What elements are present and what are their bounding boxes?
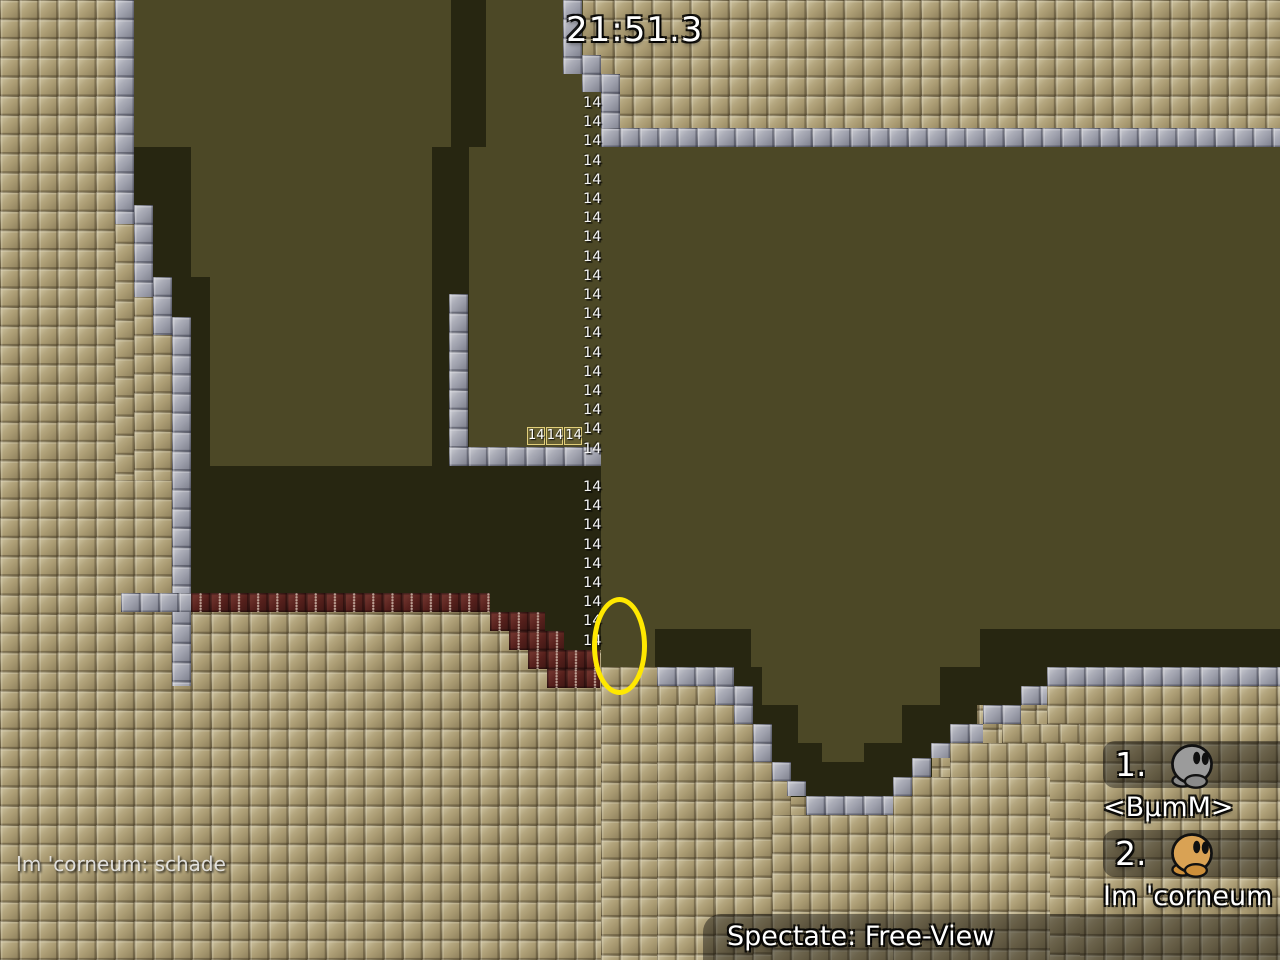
unhookable-tiles <box>121 593 191 612</box>
switch-tile-boxed: 14 <box>564 427 582 445</box>
chat-message: Im 'corneum: schade <box>16 852 226 876</box>
scoreboard-row-2: 2. <box>1103 830 1280 877</box>
dark-background <box>655 629 751 667</box>
switch-number-label: 14 <box>583 402 603 418</box>
air-background <box>751 629 980 667</box>
switch-number-label: 14 <box>583 364 603 380</box>
switch-number-label: 14 <box>583 306 603 322</box>
unhookable-tiles <box>772 762 791 781</box>
dark-background <box>191 466 601 593</box>
spectate-bar[interactable]: Spectate: Free-View <box>703 914 1280 960</box>
switch-number-label: 14 <box>583 268 603 284</box>
switch-number-label: 14 <box>583 249 603 265</box>
scoreboard-rank-1: 1. <box>1115 745 1167 784</box>
unhookable-tiles <box>950 724 983 743</box>
dark-background <box>980 629 1280 667</box>
switch-number-label: 14 <box>583 517 603 533</box>
switch-number-label: 14 <box>583 421 603 437</box>
unhookable-tiles <box>657 667 734 686</box>
switch-number-label: 14 <box>583 191 603 207</box>
switch-number-label: 14 <box>583 479 603 495</box>
unhookable-tiles <box>806 796 893 815</box>
switch-number-label: 14 <box>583 325 603 341</box>
unhookable-tiles <box>115 0 134 224</box>
switch-number-label: 14 <box>583 575 603 591</box>
switch-number-label: 14 <box>583 153 603 169</box>
unhookable-tiles <box>715 686 753 705</box>
unhookable-tiles <box>153 277 172 335</box>
switch-number-label: 14 <box>583 95 603 111</box>
unhookable-tiles <box>1047 667 1280 686</box>
scoreboard-name-1: <BμmM> <box>1103 792 1234 823</box>
scoreboard-name-2: Im 'corneum <box>1103 881 1272 912</box>
switch-number-label: 14 <box>583 594 603 610</box>
unhookable-tiles <box>1021 686 1047 705</box>
switch-tile-boxed: 14 <box>527 427 545 445</box>
switch-number-label: 14 <box>583 383 603 399</box>
scoreboard-rank-2: 2. <box>1115 834 1167 873</box>
switch-number-label: 14 <box>583 287 603 303</box>
air-background <box>762 667 940 705</box>
freeze-tiles <box>547 669 600 688</box>
switch-number-label: 14 <box>583 172 603 188</box>
air-background <box>601 147 1280 629</box>
unhookable-tiles <box>893 777 912 796</box>
tee-avatar-2 <box>1167 829 1217 879</box>
switch-number-label: 14 <box>583 441 603 457</box>
air-background <box>822 743 864 762</box>
game-viewport: 1414141414141414141414141414141414141414… <box>0 0 1280 960</box>
ground-tiles <box>115 224 134 480</box>
switch-number-label: 14 <box>583 537 603 553</box>
freeze-tiles <box>191 593 490 612</box>
switch-number-label: 14 <box>583 133 603 149</box>
tee-avatar-1 <box>1167 740 1217 790</box>
unhookable-tiles <box>449 447 601 466</box>
spectate-mode-label: Spectate: Free-View <box>727 914 994 960</box>
switch-number-label: 14 <box>583 114 603 130</box>
unhookable-tiles <box>449 294 468 466</box>
switch-number-label: 14 <box>583 345 603 361</box>
unhookable-tiles <box>983 705 1021 724</box>
scoreboard-row-1: 1. <box>1103 741 1280 788</box>
unhookable-tiles <box>172 317 191 686</box>
freeze-tiles <box>509 631 564 650</box>
unhookable-tiles <box>753 724 772 762</box>
spectator-marker-ellipse <box>592 597 647 695</box>
unhookable-tiles <box>582 55 601 92</box>
air-background <box>798 705 902 743</box>
unhookable-tiles <box>912 758 931 777</box>
ground-tiles <box>134 297 153 480</box>
unhookable-tiles <box>134 205 153 297</box>
switch-tile-boxed: 14 <box>546 427 564 445</box>
unhookable-tiles <box>931 743 950 758</box>
unhookable-tiles <box>601 128 1280 147</box>
freeze-tiles <box>528 650 600 669</box>
unhookable-tiles <box>787 781 806 796</box>
switch-number-label: 14 <box>583 229 603 245</box>
race-timer: 21:51.3 <box>566 10 703 50</box>
freeze-tiles <box>490 612 545 631</box>
dark-background <box>451 0 486 147</box>
unhookable-tiles <box>734 705 753 724</box>
ground-tiles <box>153 335 172 480</box>
switch-number-label: 14 <box>583 210 603 226</box>
switch-number-label: 14 <box>583 556 603 572</box>
switch-number-label: 14 <box>583 498 603 514</box>
